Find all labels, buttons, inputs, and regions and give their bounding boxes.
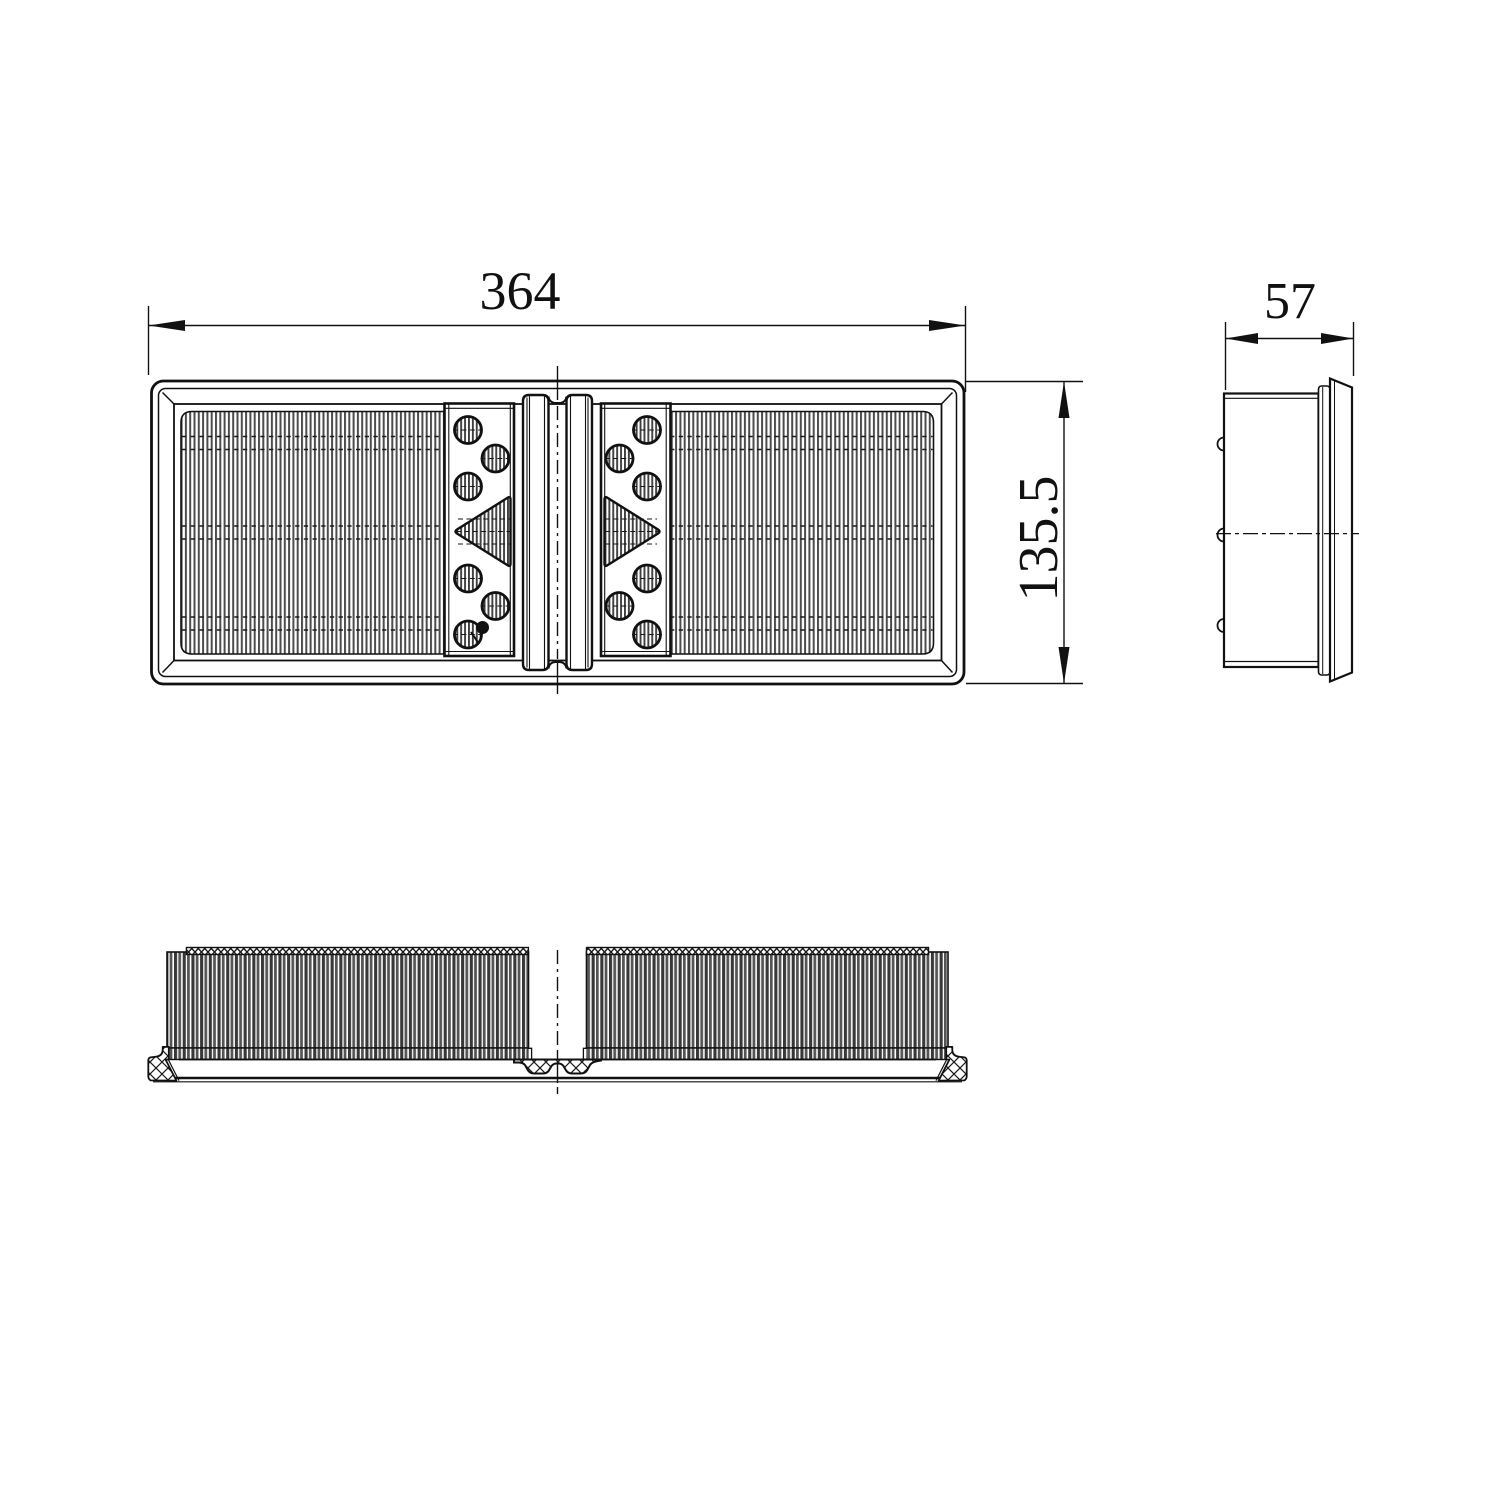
svg-text:57: 57 [1264,273,1316,330]
svg-text:364: 364 [480,261,561,321]
svg-text:135.5: 135.5 [1008,476,1070,602]
